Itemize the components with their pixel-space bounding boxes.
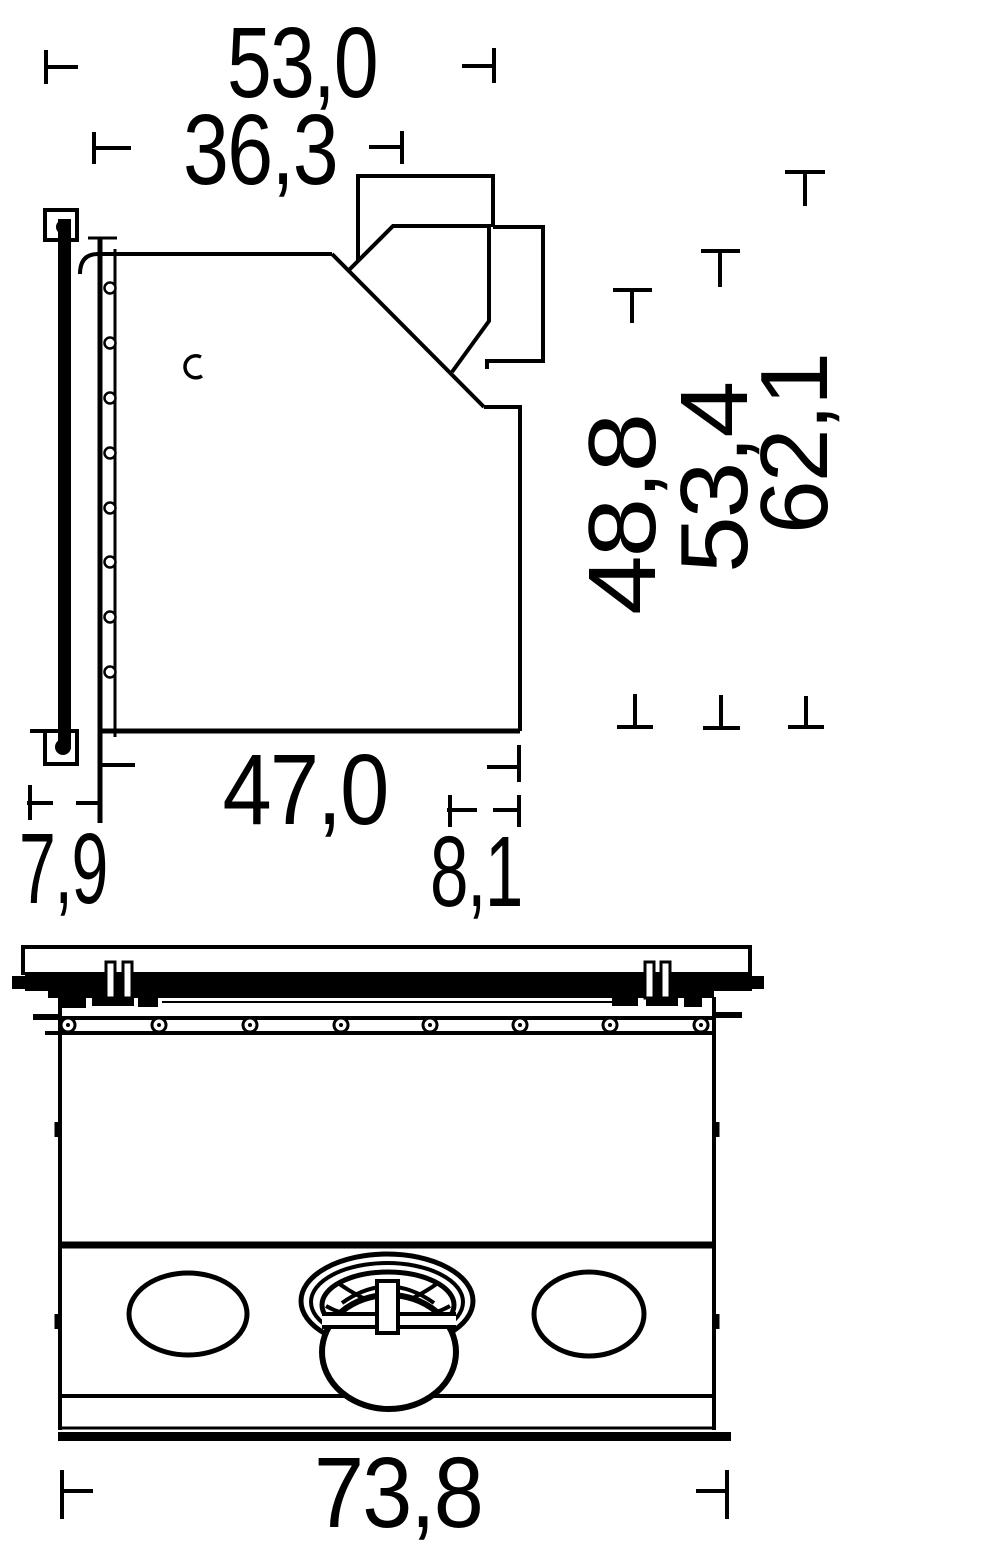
dim-tick-left [94, 132, 131, 164]
flue-collar [301, 1254, 473, 1409]
bracket-detail [612, 996, 638, 1006]
bolt [105, 557, 116, 568]
flue-vertical-pipe [358, 176, 493, 262]
dim-label: 36,3 [183, 94, 337, 206]
dim-rear: 8,1 [430, 795, 522, 928]
dim-tick-left [62, 1470, 93, 1519]
drawing-canvas: 53,0 36,3 48,8 53,4 62,1 47,0 [0, 0, 999, 1541]
hinge-tab [123, 962, 132, 998]
dim-label: 48,8 [569, 415, 676, 615]
bracket-detail [646, 998, 678, 1006]
dim-label: 47,0 [223, 734, 388, 846]
door-glass-pane [58, 219, 71, 749]
glass-band [25, 972, 752, 991]
body-rear-edge [484, 407, 520, 731]
bolt [105, 393, 116, 404]
dim-tick-bottom [703, 695, 740, 728]
right-opening [534, 1272, 644, 1356]
dim-tick-bottom [617, 694, 653, 727]
bolt-bar [33, 1015, 742, 1033]
dim-tick-top [613, 290, 652, 323]
glass-band-left-nub [12, 976, 26, 989]
body-diagonal-edge [332, 254, 484, 407]
top-view: 73,8 [12, 947, 764, 1541]
drawing-sheet: 53,0 36,3 48,8 53,4 62,1 47,0 [0, 0, 999, 1541]
dim-front: 7,9 [19, 785, 107, 925]
dim-overall-width: 73,8 [62, 1437, 727, 1541]
dim-tick-left [46, 50, 78, 84]
bracket-detail [92, 998, 134, 1006]
hinge-tab [661, 962, 670, 998]
left-opening [129, 1273, 247, 1355]
hinge-tab [106, 962, 115, 998]
bracket-detail [62, 996, 86, 1008]
side-view: 53,0 36,3 48,8 53,4 62,1 47,0 [19, 7, 848, 928]
glass-band-right-nub [752, 976, 764, 989]
flue-rear-outlet [487, 227, 543, 369]
dim-height-a: 48,8 [569, 290, 676, 727]
dim-label: 7,9 [19, 813, 107, 925]
dim-tick-top [701, 251, 740, 287]
dim-tick-right [462, 48, 494, 83]
bolt [105, 503, 116, 514]
bracket-detail [138, 996, 158, 1007]
dim-tick-right [487, 745, 519, 782]
dim-label: 73,8 [314, 1437, 482, 1541]
dim-label: 62,1 [741, 354, 848, 534]
dim-tick-right [369, 131, 402, 164]
dim-height-c: 62,1 [741, 172, 848, 727]
bracket-detail [684, 996, 702, 1007]
bolt [105, 338, 116, 349]
body-top-edge [80, 254, 332, 274]
side-view-body [80, 254, 520, 731]
hinge-tab [645, 962, 654, 998]
body-mark [185, 356, 202, 378]
flue-elbow [348, 226, 489, 372]
dim-tick-right [696, 1470, 727, 1519]
bolt [105, 612, 116, 623]
bolt [105, 283, 116, 294]
damper-handle-tab [377, 1281, 398, 1333]
dim-tick-top [785, 172, 825, 206]
side-view-flue [348, 176, 543, 372]
dim-label: 8,1 [430, 816, 522, 928]
bolt [105, 667, 116, 678]
bolt [105, 448, 116, 459]
dim-tick-bottom [788, 696, 824, 727]
